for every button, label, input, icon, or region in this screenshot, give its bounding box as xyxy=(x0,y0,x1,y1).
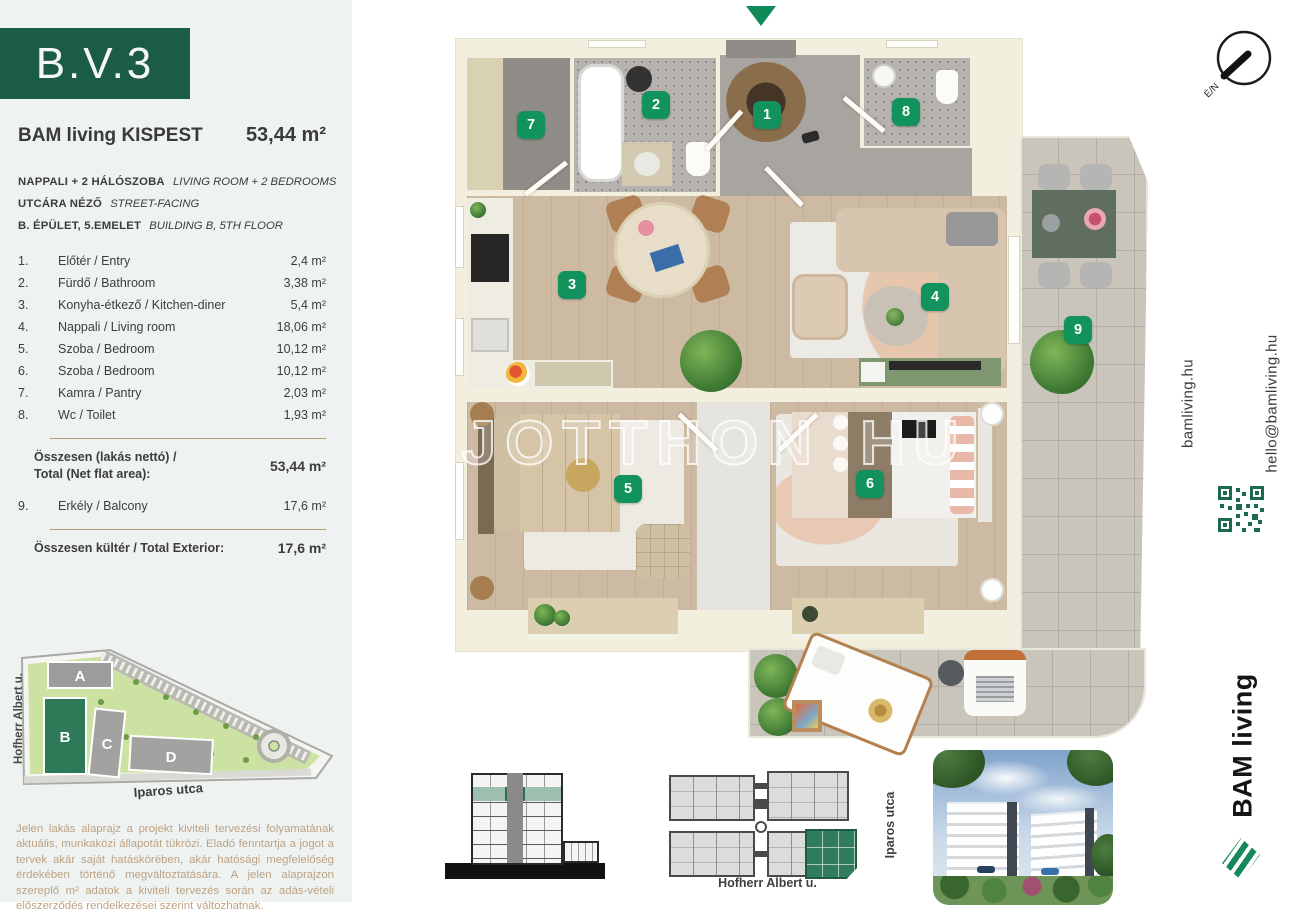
divider xyxy=(50,529,326,530)
room-area: 5,4 m² xyxy=(291,298,326,312)
room-row-3: 3.Konyha-étkező / Kitchen-diner5,4 m² xyxy=(18,298,326,320)
room-area: 1,93 m² xyxy=(284,408,326,422)
bedroom5-armchair xyxy=(636,524,690,578)
outdoor-table xyxy=(1032,190,1116,258)
wc-sink xyxy=(872,64,896,88)
flower-vase xyxy=(638,220,654,236)
email-address: hello@bamliving.hu xyxy=(1264,324,1281,484)
bed5-pillows xyxy=(494,416,520,530)
nightstand xyxy=(470,402,494,426)
nightstand xyxy=(470,576,494,600)
terrace-armchair xyxy=(964,650,1026,716)
room-list: 1.Előtér / Entry2,4 m² 2.Fürdő / Bathroo… xyxy=(18,254,326,557)
room-area: 3,38 m² xyxy=(284,276,326,290)
building-d-label: D xyxy=(166,749,177,766)
net-total-label-hu: Összesen (lakás nettó) / xyxy=(34,450,176,464)
deck-plant-dark xyxy=(802,606,818,622)
spec-list: NAPPALI + 2 HÁLÓSZOBA LIVING ROOM + 2 BE… xyxy=(18,176,338,242)
bed5-pouf xyxy=(566,458,600,492)
photo-tree xyxy=(1067,750,1113,786)
laundry-basket xyxy=(626,66,652,92)
compass-label: É/N xyxy=(1202,81,1221,100)
bathroom-sink xyxy=(634,152,660,176)
room-num: 6. xyxy=(18,364,42,378)
wc-toilet xyxy=(936,70,958,104)
plate-connector xyxy=(753,783,769,789)
room-row-2: 2.Fürdő / Bathroom3,38 m² xyxy=(18,276,326,298)
tv-console xyxy=(859,358,1001,386)
exterior-total-label: Összesen kültér / Total Exterior: xyxy=(18,540,278,557)
plan-badge-8: 8 xyxy=(892,98,920,126)
balcony-slider xyxy=(1008,236,1020,344)
bed6-blanket xyxy=(848,412,892,518)
elevation-annex xyxy=(563,841,599,863)
nightstand xyxy=(980,578,1004,602)
spec-floor-hu: B. ÉPÜLET, 5.EMELET xyxy=(18,220,141,232)
exterior-total-row: Összesen kültér / Total Exterior: 17,6 m… xyxy=(18,540,326,557)
brand-logo-text: BAM living xyxy=(1228,661,1259,831)
plate-street-right: Iparos utca xyxy=(883,780,897,870)
window xyxy=(886,40,938,48)
outdoor-chair xyxy=(1038,164,1070,190)
unit-code-box: B.V.3 xyxy=(0,28,190,99)
divider xyxy=(50,438,326,439)
room-area: 18,06 m² xyxy=(277,320,326,334)
hall-floor xyxy=(860,148,972,202)
plate-connector xyxy=(753,851,769,857)
net-total-value: 53,44 m² xyxy=(270,458,326,474)
plan-badge-9: 9 xyxy=(1064,316,1092,344)
plan-badge-4: 4 xyxy=(921,283,949,311)
kitchen-worktop xyxy=(535,362,611,386)
project-title: BAM living KISPEST xyxy=(18,125,203,147)
plate-wing xyxy=(669,775,755,821)
room-area: 17,6 m² xyxy=(284,499,326,513)
compass-needle-icon xyxy=(1224,54,1248,76)
floor-plate-diagram xyxy=(655,755,880,877)
room-name: Előtér / Entry xyxy=(42,254,291,268)
room-name: Szoba / Bedroom xyxy=(42,364,277,378)
room-num: 9. xyxy=(18,499,42,513)
room-row-5: 5.Szoba / Bedroom10,12 m² xyxy=(18,342,326,364)
room-num: 2. xyxy=(18,276,42,290)
plan-badge-5: 5 xyxy=(614,475,642,503)
terrace-side-table xyxy=(792,700,822,732)
building-b-label: B xyxy=(60,729,71,746)
room-num: 1. xyxy=(18,254,42,268)
room-area: 10,12 m² xyxy=(277,364,326,378)
plate-courtyard-circle xyxy=(755,821,767,833)
elevation-core xyxy=(507,773,523,863)
deck-plants xyxy=(554,610,570,626)
coffee-table-plant xyxy=(886,308,904,326)
total-area-headline: 53,44 m² xyxy=(246,124,326,147)
site-map: A B C D Hofherr Albert u. Iparos utca xyxy=(6,642,346,812)
net-total-label: Összesen (lakás nettó) / Total (Net flat… xyxy=(18,449,270,483)
spec-rooms-hu: NAPPALI + 2 HÁLÓSZOBA xyxy=(18,176,165,188)
title-row: BAM living KISPEST 53,44 m² xyxy=(18,124,326,147)
disclaimer-text: Jelen lakás alaprajz a projekt kiviteli … xyxy=(16,822,334,914)
outdoor-chair xyxy=(1080,262,1112,288)
room-num: 3. xyxy=(18,298,42,312)
window xyxy=(455,462,464,540)
room-name: Erkély / Balcony xyxy=(42,499,284,513)
spec-floor-en: BUILDING B, 5TH FLOOR xyxy=(149,220,283,232)
room-num: 7. xyxy=(18,386,42,400)
outdoor-chair xyxy=(1038,262,1070,288)
window xyxy=(455,206,464,268)
plan-badge-2: 2 xyxy=(642,91,670,119)
bed6-tv xyxy=(902,420,936,438)
room-name: Wc / Toilet xyxy=(42,408,284,422)
tray xyxy=(1042,214,1060,232)
info-panel: B.V.3 BAM living KISPEST 53,44 m² NAPPAL… xyxy=(0,0,352,902)
spec-rooms-en: LIVING ROOM + 2 BEDROOMS xyxy=(173,176,337,188)
room-name: Nappali / Living room xyxy=(42,320,277,334)
floorplan-sheet: { "unit": { "code": "B.V.3", "project": … xyxy=(0,0,1290,902)
spec-floor: B. ÉPÜLET, 5.EMELET BUILDING B, 5TH FLOO… xyxy=(18,220,338,232)
bedroom5-deck xyxy=(528,598,678,638)
armchair xyxy=(792,274,848,340)
room-area: 2,4 m² xyxy=(291,254,326,268)
photo-building-left-core xyxy=(1007,802,1017,880)
plate-highlighted-unit xyxy=(805,829,857,879)
street-label-iparos: Iparos utca xyxy=(133,780,204,800)
room-row-8: 8.Wc / Toilet1,93 m² xyxy=(18,408,326,430)
plate-wing xyxy=(767,831,807,877)
plan-badge-7: 7 xyxy=(517,111,545,139)
plate-wing xyxy=(767,771,849,821)
plan-badge-6: 6 xyxy=(856,470,884,498)
plate-wing xyxy=(669,831,755,877)
net-total-label-en: Total (Net flat area): xyxy=(34,467,150,481)
room-area: 2,03 m² xyxy=(284,386,326,400)
street-label-hofherr: Hofherr Albert u. xyxy=(13,673,25,764)
room-num: 4. xyxy=(18,320,42,334)
bed5-headboard xyxy=(478,412,494,534)
building-a-label: A xyxy=(75,668,86,685)
compass: É/N xyxy=(1200,22,1284,106)
window xyxy=(455,318,464,376)
plan-badge-3: 3 xyxy=(558,271,586,299)
pantry-cabinet xyxy=(467,58,503,190)
coffee-table xyxy=(864,286,928,346)
room-area: 10,12 m² xyxy=(277,342,326,356)
photo-car xyxy=(1041,868,1059,875)
room-name: Szoba / Bedroom xyxy=(42,342,277,356)
sofa-throw xyxy=(946,212,998,246)
nightstand xyxy=(980,402,1004,426)
building-c-label: C xyxy=(102,736,113,753)
window xyxy=(588,40,646,48)
brand-leaf-icon xyxy=(1222,838,1260,880)
building-render-photo xyxy=(933,750,1113,905)
building-elevation-diagram xyxy=(445,765,605,883)
elevation-ground xyxy=(445,863,605,879)
room-row-4: 4.Nappali / Living room18,06 m² xyxy=(18,320,326,342)
laptop-on-table xyxy=(650,244,685,272)
plate-connector xyxy=(753,799,769,809)
plate-street-bottom: Hofherr Albert u. xyxy=(655,876,880,890)
terrace-pouf xyxy=(938,660,964,686)
room-num: 5. xyxy=(18,342,42,356)
dining-table xyxy=(614,202,710,298)
deck-plants xyxy=(534,604,556,626)
kitchen-sink xyxy=(471,318,509,352)
kitchen-plant xyxy=(470,202,486,218)
floor-plan: 1 2 3 4 5 6 7 8 9 xyxy=(440,0,1152,762)
photo-shrubs xyxy=(933,876,1113,905)
net-total-row: Összesen (lakás nettó) / Total (Net flat… xyxy=(18,449,326,483)
website-url: bamliving.hu xyxy=(1180,349,1197,459)
flower-pot xyxy=(1084,208,1106,230)
cushion xyxy=(796,704,818,728)
outdoor-chair xyxy=(1080,164,1112,190)
photo-car xyxy=(977,866,995,873)
room-name: Fürdő / Bathroom xyxy=(42,276,284,290)
bathtub xyxy=(578,64,624,182)
spec-facing: UTCÁRA NÉZŐ STREET-FACING xyxy=(18,198,338,210)
exterior-total-value: 17,6 m² xyxy=(278,540,326,556)
plan-badge-1: 1 xyxy=(753,101,781,129)
roundabout-center xyxy=(269,741,279,751)
room-num: 8. xyxy=(18,408,42,422)
bedroom-corridor-floor xyxy=(697,402,770,610)
media-unit xyxy=(861,362,885,382)
room-row-1: 1.Előtér / Entry2,4 m² xyxy=(18,254,326,276)
room-row-9: 9.Erkély / Balcony17,6 m² xyxy=(18,499,326,521)
laptop xyxy=(976,676,1014,702)
spec-facing-hu: UTCÁRA NÉZŐ xyxy=(18,198,102,210)
room-name: Konyha-étkező / Kitchen-diner xyxy=(42,298,291,312)
bedroom6-deck xyxy=(792,598,924,638)
room-name: Kamra / Pantry xyxy=(42,386,284,400)
entry-vestibule xyxy=(726,40,796,58)
sun-hat xyxy=(865,695,896,726)
room-row-7: 7.Kamra / Pantry2,03 m² xyxy=(18,386,326,408)
fruit-bowl xyxy=(506,362,530,386)
entrance-arrow-icon xyxy=(746,6,776,26)
living-plant xyxy=(680,330,742,392)
unit-code: B.V.3 xyxy=(36,39,155,89)
bed6-pillows xyxy=(950,416,974,514)
lounger-pillow xyxy=(810,645,846,677)
room-row-6: 6.Szoba / Bedroom10,12 m² xyxy=(18,364,326,386)
stove xyxy=(471,234,509,282)
qr-code xyxy=(1218,486,1264,532)
spec-facing-en: STREET-FACING xyxy=(110,198,199,210)
spec-rooms: NAPPALI + 2 HÁLÓSZOBA LIVING ROOM + 2 BE… xyxy=(18,176,338,188)
tv xyxy=(889,361,981,370)
